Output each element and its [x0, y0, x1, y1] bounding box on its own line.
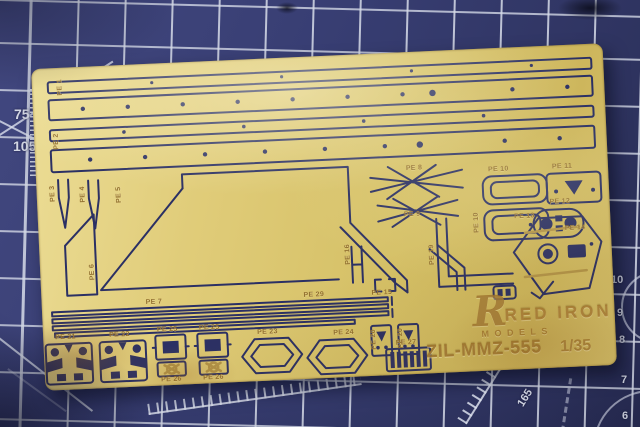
pe14-hexagon-plate-part: [512, 215, 603, 295]
mat-number-7: 7: [621, 374, 627, 386]
part-label-pe10-b: PE 10: [473, 212, 481, 233]
brand-name-text: RED IRON: [504, 301, 612, 326]
mat-number-165: 165: [515, 387, 535, 409]
part-label-pe11: PE 11: [552, 163, 572, 171]
pe25-pe26-frame-parts: [152, 334, 190, 377]
pe12-gauge-part: [533, 208, 584, 238]
part-label-pe2: PE 2: [53, 133, 61, 150]
part-label-pe14: PE 14: [565, 224, 586, 232]
part-label-pe19: PE 19: [428, 244, 436, 265]
kit-scale-text: 1/35: [560, 337, 592, 356]
pe16-fork-part: [351, 246, 363, 282]
mat-dark-speck: [276, 2, 298, 14]
mat-number-105: 105: [13, 138, 36, 154]
part-label-pe4: PE 4: [79, 186, 87, 203]
part-label-pe1: PE 1: [56, 79, 64, 96]
pe24-hexagon-ring-part: [307, 338, 368, 375]
part-label-pe29: PE 29: [303, 291, 324, 299]
part-label-pe13: PE 13: [514, 212, 535, 220]
part-label-pe26-b: PE 26: [203, 374, 224, 382]
part-label-pe8: PE 8: [406, 164, 423, 172]
part-label-pe20-a: PE 20: [370, 329, 378, 350]
part-label-pe3: PE 3: [49, 185, 57, 202]
part-label-pe5: PE 5: [115, 186, 123, 203]
part-label-pe7: PE 7: [146, 298, 163, 306]
part-label-pe26-a: PE 26: [161, 376, 182, 384]
part-label-pe27: PE 27: [396, 339, 417, 347]
part-label-pe10-a: PE 10: [488, 166, 509, 174]
pe5-large-plate-part: [96, 164, 407, 306]
mat-dashed-line: [561, 378, 572, 427]
pe6-triangle-part: [64, 214, 98, 295]
photoetch-brass-fret: PE 1 PE 2 PE 3 PE 4 PE 5 PE 6 PE 7 PE 8 …: [31, 43, 617, 391]
part-label-pe23: PE 23: [257, 328, 278, 336]
pe2-chassis-rail-parts: [50, 106, 595, 173]
brand-logo-r-monogram: R: [472, 290, 509, 334]
mat-number-6: 6: [622, 410, 628, 422]
part-label-pe25-b: PE 25: [199, 324, 220, 332]
mat-number-8: 8: [619, 334, 625, 346]
part-label-pe21: PE 21: [55, 333, 76, 341]
part-label-pe9: PE 9: [404, 211, 421, 219]
pe22-bracket-part: [99, 340, 147, 382]
part-label-pe15: PE 15: [371, 289, 392, 297]
part-label-pe25-a: PE 25: [157, 326, 178, 334]
part-label-pe24: PE 24: [333, 329, 354, 337]
part-label-pe16: PE 16: [344, 244, 352, 265]
mat-dark-smudge: [558, 0, 622, 20]
pe10-window-frame-parts: [482, 174, 549, 241]
part-label-pe22: PE 22: [109, 331, 130, 339]
pe23-hexagon-ring-part: [241, 337, 302, 374]
mat-number-9: 9: [617, 307, 623, 319]
pe27-comb-part: [386, 347, 431, 371]
pe1-chassis-rail-parts: [48, 58, 593, 121]
kit-title-text: ZIL-MMZ-555: [426, 336, 542, 362]
part-label-pe6: PE 6: [89, 264, 97, 281]
mat-number-75: 75: [14, 106, 30, 122]
pe25-pe26-frame-parts: [194, 332, 232, 375]
mat-protractor-arc: [593, 390, 640, 427]
part-label-pe12: PE 12: [549, 198, 570, 206]
photo-of-photoetch-fret-on-cutting-mat: 75 105 10 9 8 7 6 165: [0, 0, 640, 427]
mat-protractor-arc: [621, 271, 640, 343]
check-shaped-part: [531, 282, 554, 299]
pe21-bracket-part: [46, 343, 94, 385]
